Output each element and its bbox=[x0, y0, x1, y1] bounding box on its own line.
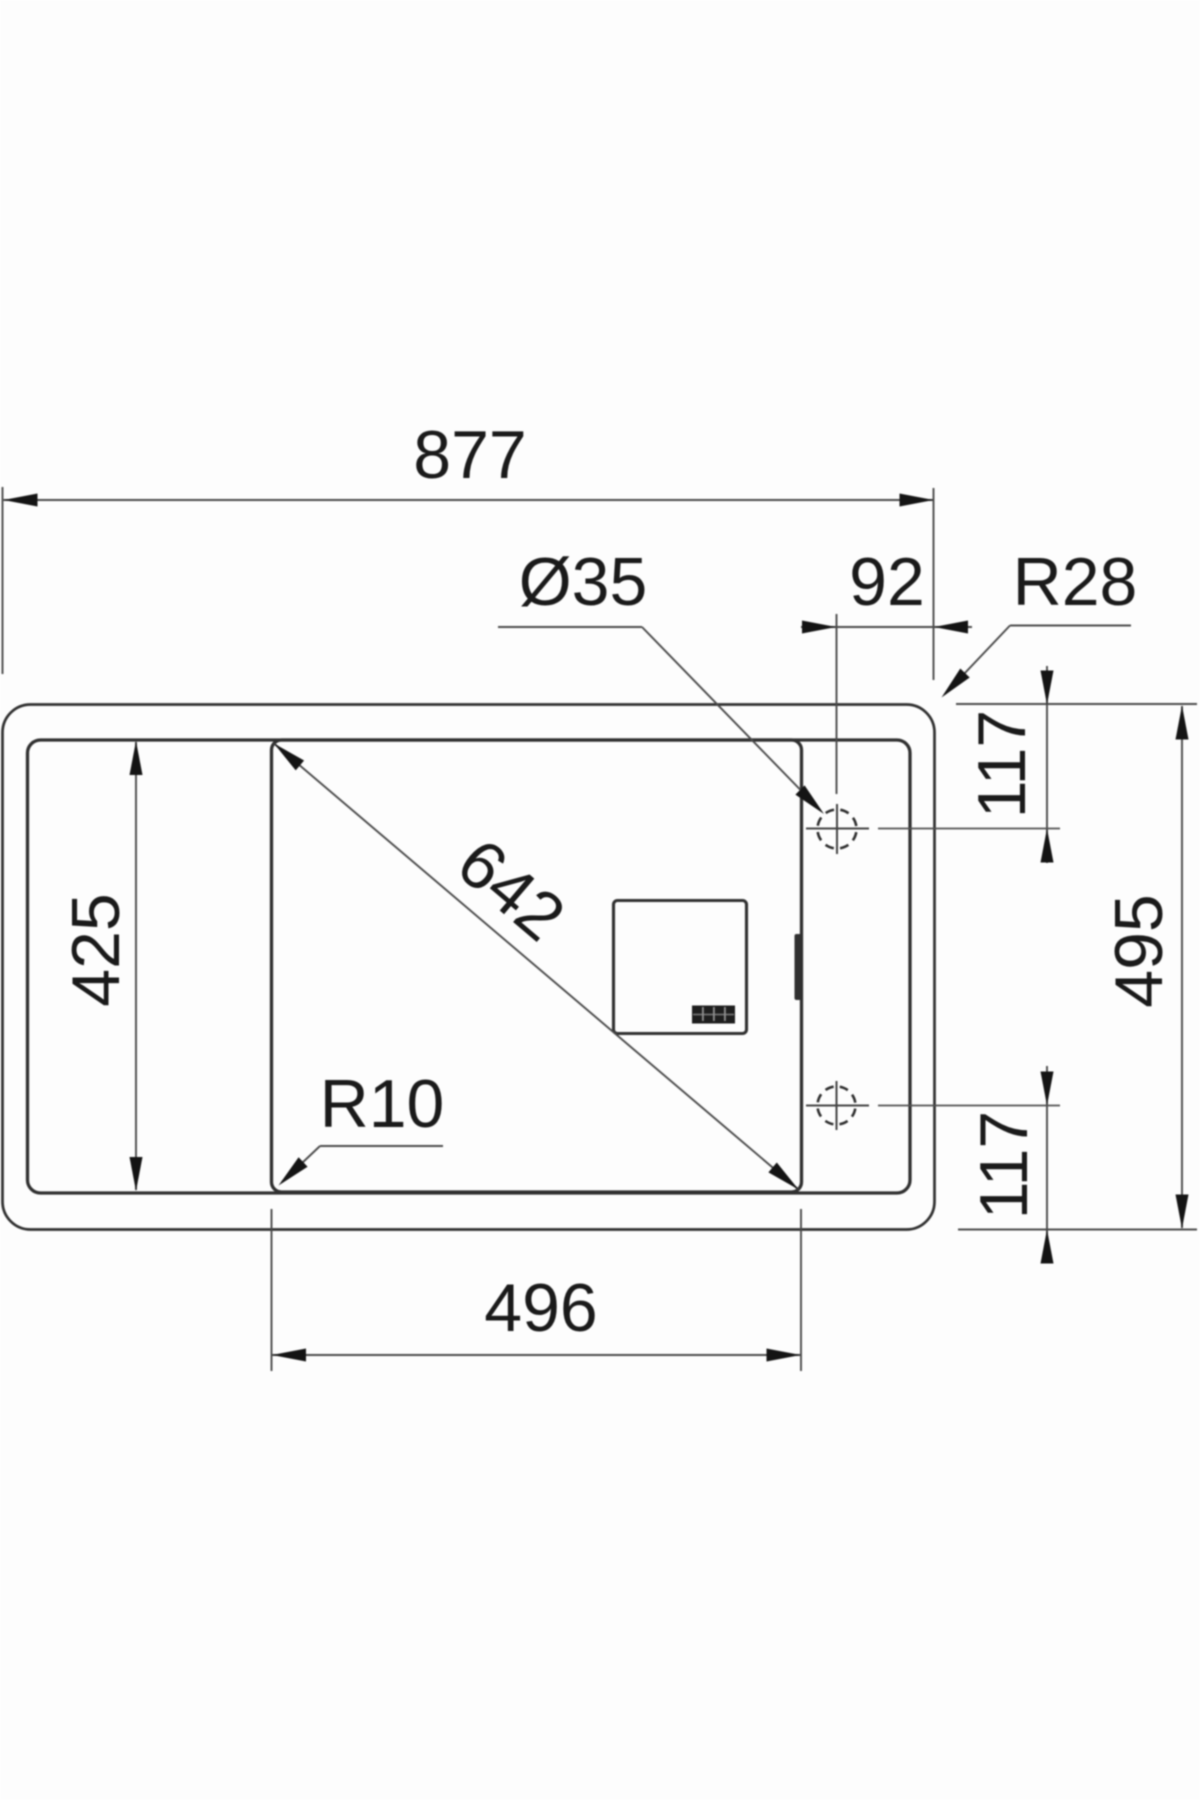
svg-text:117: 117 bbox=[966, 1111, 1042, 1219]
svg-text:R28: R28 bbox=[1013, 544, 1138, 620]
svg-text:Ø35: Ø35 bbox=[519, 544, 648, 620]
svg-text:92: 92 bbox=[849, 544, 925, 620]
svg-text:425: 425 bbox=[58, 893, 134, 1006]
svg-text:117: 117 bbox=[964, 710, 1040, 818]
svg-text:496: 496 bbox=[484, 1270, 597, 1346]
svg-text:877: 877 bbox=[413, 417, 526, 493]
svg-text:R10: R10 bbox=[320, 1066, 445, 1142]
svg-text:495: 495 bbox=[1101, 894, 1177, 1007]
